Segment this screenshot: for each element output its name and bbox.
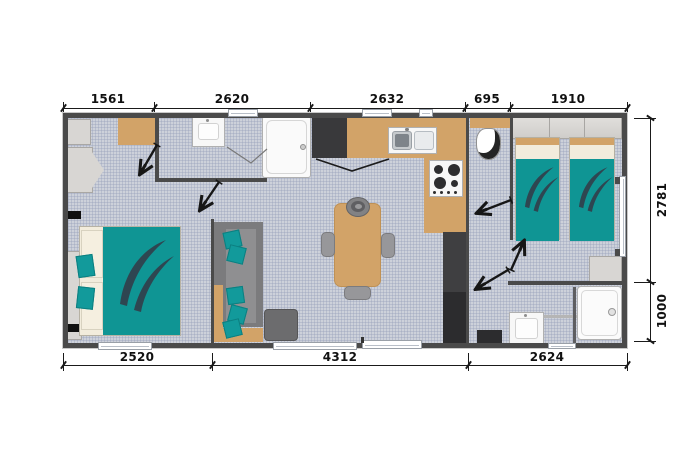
window-right-handle-bottom: [615, 249, 620, 256]
window-right-handle-top: [615, 177, 620, 184]
dimension-label-bottom-2: 4312: [323, 350, 358, 364]
entry-door-handle: [361, 337, 364, 343]
dimension-label-top-2: 2620: [215, 92, 250, 106]
window-right: [619, 176, 626, 257]
dimension-label-bottom-3: 2624: [530, 350, 565, 364]
floorplan-canvas: 1561 2620 2632 695 1910 2520 4312 2624 2…: [0, 0, 695, 460]
dimension-line-right: [650, 118, 651, 341]
dimension-label-top-5: 1910: [551, 92, 586, 106]
entry-door: [362, 340, 422, 349]
dimension-line-top: [63, 108, 627, 109]
dimension-line-bottom: [63, 365, 627, 366]
dimension-label-top-1: 1561: [91, 92, 126, 106]
plan-outline: [63, 113, 627, 348]
window-top-3: [419, 109, 433, 117]
window-bottom-3: [548, 343, 576, 349]
window-bottom-1: [98, 342, 152, 350]
window-top-2: [362, 109, 392, 117]
dimension-label-right-2: 1000: [655, 294, 669, 329]
dimension-label-right-1: 2781: [655, 183, 669, 218]
dimension-label-bottom-1: 2520: [120, 350, 155, 364]
dimension-label-top-3: 2632: [370, 92, 405, 106]
window-top-1: [228, 109, 258, 117]
window-bottom-2: [273, 342, 357, 350]
dimension-label-top-4: 695: [474, 92, 500, 106]
